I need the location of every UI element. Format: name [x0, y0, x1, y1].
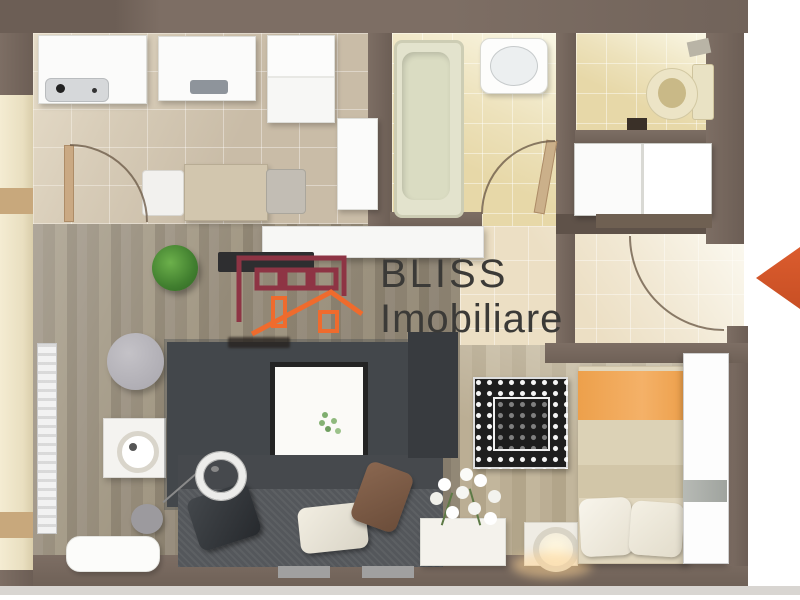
bedroom-wardrobe-shelf — [683, 480, 727, 502]
wall-left-upper — [0, 33, 33, 97]
dining-chair-left — [142, 170, 184, 216]
bedroom-wardrobe-column — [683, 353, 729, 564]
coffee-table-decor-dot — [129, 443, 137, 451]
kitchen-sink-basin — [45, 78, 109, 102]
hallway-wardrobe — [574, 143, 712, 216]
picture-plant-sprig — [322, 412, 328, 418]
floor-edge-strip — [0, 586, 800, 595]
wall-top — [0, 0, 748, 33]
bathroom-sink-basin — [490, 46, 538, 86]
kitchen-faucet-icon — [56, 84, 65, 93]
console-table — [66, 536, 160, 572]
patterned-rug-inner-ring — [493, 397, 550, 451]
arc-floor-lamp-bulb — [211, 466, 219, 472]
coffee-table-plate — [117, 431, 159, 473]
floor-plan-render: BLISS Imobiliare — [0, 0, 800, 600]
bed-blanket-orange — [578, 371, 685, 420]
bed-sheet-band-2 — [578, 465, 685, 498]
balcony-frame-block-top — [0, 188, 33, 214]
entrance-arrow-icon — [756, 247, 800, 309]
wc-paper-holder — [627, 118, 647, 130]
brand-name-line2: Imobiliare — [380, 299, 563, 339]
dark-side-unit — [408, 332, 458, 458]
balcony-frame-block-bottom — [0, 512, 33, 538]
kitchen-tall-cabinet — [337, 118, 378, 210]
radiator — [37, 343, 57, 534]
wall-bathroom-wc — [556, 33, 576, 132]
bed-sheet-band-1 — [578, 420, 685, 465]
flower-blooms — [438, 478, 451, 491]
pouf — [107, 333, 164, 390]
hallway-wardrobe-base — [596, 214, 712, 228]
kitchen-faucet-handle-icon — [92, 88, 97, 93]
balcony-window-front — [0, 95, 33, 572]
bed-pillow-left — [579, 497, 634, 558]
kitchen-tray — [190, 80, 228, 94]
bed-pillow-right — [628, 500, 685, 558]
side-table-round — [131, 504, 163, 534]
dining-chair-right — [266, 169, 306, 214]
arc-floor-lamp-shade — [196, 452, 246, 500]
watermark-smudge — [228, 337, 290, 348]
rug-picture-panel — [270, 362, 368, 462]
plant — [152, 245, 198, 291]
kitchen-fridge — [267, 35, 335, 123]
brand-name-line1: BLISS — [380, 254, 508, 294]
sofa-foot-left — [278, 566, 330, 578]
sofa-foot-right — [362, 566, 414, 578]
dining-table — [184, 164, 268, 221]
bathtub-basin — [402, 52, 450, 200]
toilet-bowl-inner — [658, 78, 686, 108]
flower-planter — [420, 518, 506, 566]
